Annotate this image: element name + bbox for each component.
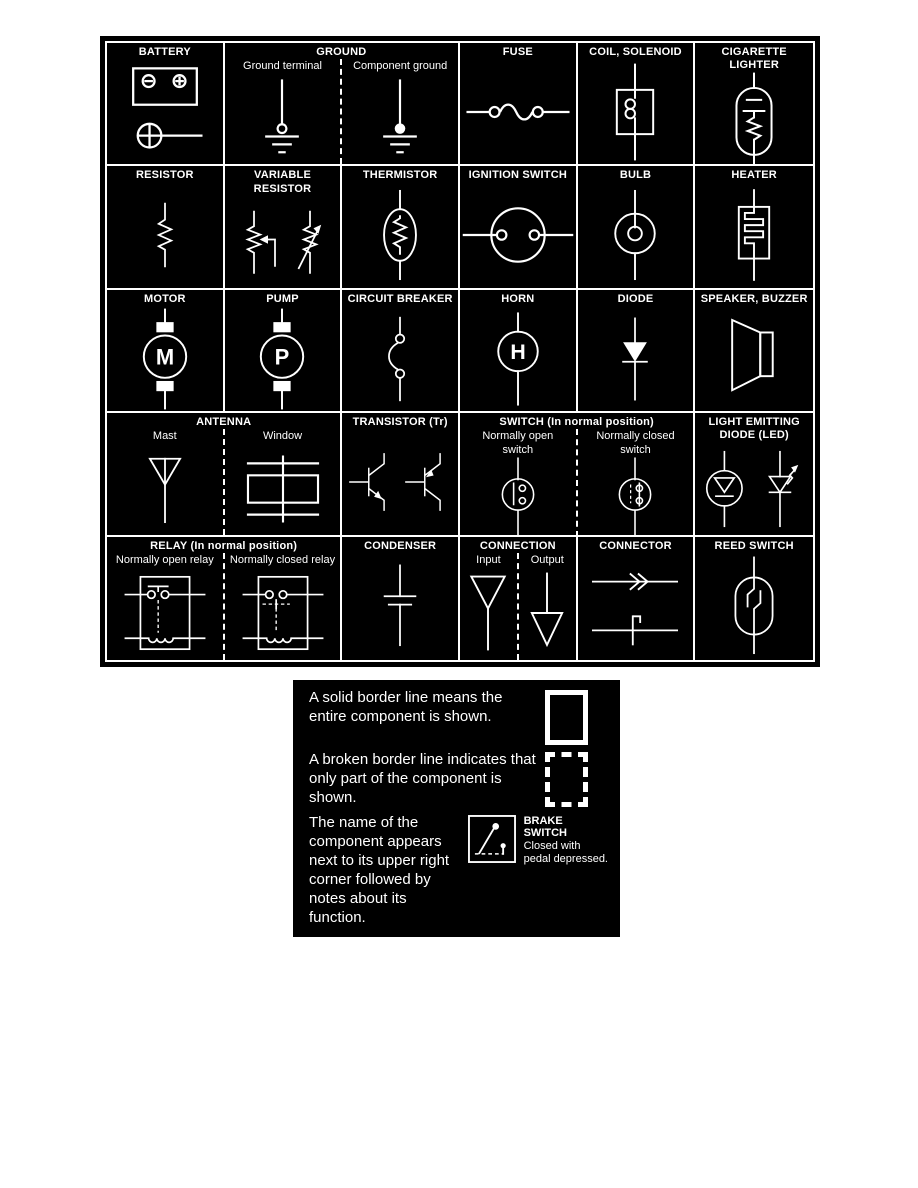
cell-title: CONNECTION: [460, 537, 576, 553]
cell-cigarette-lighter: CIGARETTE LIGHTER: [695, 43, 813, 166]
note-broken-border: A broken border line indicates that only…: [309, 750, 608, 807]
cell-antenna: ANTENNA Mast Window: [107, 413, 342, 536]
sub-label: Output: [531, 553, 564, 567]
symbol-grid: BATTERY GROUND Ground terminal: [105, 41, 815, 662]
cell-title: TRANSISTOR (Tr): [342, 413, 458, 429]
cell-title: THERMISTOR: [342, 166, 458, 182]
cell-title: RESISTOR: [107, 166, 223, 182]
brake-switch-example: BRAKE SWITCH Closed with pedal depressed…: [466, 813, 608, 866]
cell-title: REED SWITCH: [695, 537, 813, 553]
cell-ignition-switch: IGNITION SWITCH: [460, 166, 578, 289]
cell-title: BULB: [578, 166, 694, 182]
cigarette-lighter-icon: [714, 72, 794, 166]
cell-variable-resistor: VARIABLE RESISTOR: [225, 166, 343, 289]
cell-title: SWITCH (In normal position): [460, 413, 693, 429]
normally-closed-switch-icon: [602, 457, 668, 537]
component-ground-icon: [365, 75, 435, 163]
cell-title: VARIABLE RESISTOR: [225, 166, 341, 195]
cell-title: CONDENSER: [342, 537, 458, 553]
connector-icon: [582, 558, 688, 654]
cell-battery: BATTERY: [107, 43, 225, 166]
sub-label: Component ground: [353, 59, 447, 73]
normally-open-switch-icon: [485, 457, 551, 537]
cell-title: BATTERY: [107, 43, 223, 59]
horn-icon: H: [480, 309, 556, 409]
cell-title: FUSE: [460, 43, 576, 59]
battery-icon: [115, 62, 215, 162]
cell-title: IGNITION SWITCH: [460, 166, 576, 182]
resistor-icon: [130, 187, 200, 283]
cell-switch: SWITCH (In normal position) Normally ope…: [460, 413, 695, 536]
bulb-icon: [597, 187, 673, 283]
svg-text:P: P: [275, 344, 290, 369]
connection-output-icon: [523, 572, 571, 654]
brake-switch-labels: BRAKE SWITCH Closed with pedal depressed…: [524, 813, 608, 866]
cell-diode: DIODE: [578, 290, 696, 413]
broken-border-box-icon: [545, 752, 588, 807]
svg-text:H: H: [510, 340, 525, 364]
window-antenna-icon: [235, 448, 331, 530]
motor-icon: M: [125, 308, 205, 410]
cell-title: CIGARETTE LIGHTER: [695, 43, 813, 72]
circuit-breaker-icon: [365, 310, 435, 408]
cell-motor: MOTOR M: [107, 290, 225, 413]
cell-title: DIODE: [578, 290, 694, 306]
note-text: A solid border line means the entire com…: [309, 688, 537, 726]
cell-title: LIGHT EMITTING DIODE (LED): [695, 413, 813, 442]
brake-switch-icon: [466, 813, 518, 865]
normally-open-relay-icon: [113, 570, 217, 656]
cell-title: HEATER: [695, 166, 813, 182]
sub-label: Ground terminal: [243, 59, 322, 73]
note-component-name: The name of the component appears next t…: [309, 813, 608, 927]
mast-antenna-icon: [129, 447, 201, 531]
transistor-icon: [344, 441, 456, 523]
speaker-icon: [715, 311, 793, 407]
ignition-switch-icon: [462, 192, 574, 278]
normally-closed-relay-icon: [231, 570, 335, 656]
sub-label: Mast: [153, 429, 177, 443]
cell-condenser: CONDENSER: [342, 537, 460, 660]
svg-text:M: M: [156, 344, 174, 369]
cell-pump: PUMP P: [225, 290, 343, 413]
cell-connector: CONNECTOR: [578, 537, 696, 660]
cell-bulb: BULB: [578, 166, 696, 289]
thermistor-icon: [362, 187, 438, 283]
reed-switch-icon: [717, 556, 791, 656]
brake-switch-name: BRAKE: [524, 815, 608, 828]
sub-label: Normally open relay: [116, 553, 214, 567]
cell-circuit-breaker: CIRCUIT BREAKER: [342, 290, 460, 413]
cell-title: HORN: [460, 290, 576, 306]
cell-title: CONNECTOR: [578, 537, 694, 553]
sub-label: Window: [263, 429, 302, 443]
cell-title: COIL, SOLENOID: [578, 43, 694, 59]
cell-title: SPEAKER, BUZZER: [695, 290, 813, 306]
sub-label: Normally open switch: [476, 429, 560, 456]
cell-reed-switch: REED SWITCH: [695, 537, 813, 660]
cell-horn: HORN H: [460, 290, 578, 413]
note-text: A broken border line indicates that only…: [309, 750, 537, 807]
sub-label: Normally closed switch: [593, 429, 677, 456]
coil-solenoid-icon: [595, 63, 675, 161]
brake-switch-name: SWITCH: [524, 827, 608, 840]
brake-switch-note: Closed with: [524, 840, 608, 853]
solid-border-box-icon: [545, 690, 588, 745]
brake-switch-note: pedal depressed.: [524, 853, 608, 866]
cell-title: CIRCUIT BREAKER: [342, 290, 458, 306]
fuse-icon: [464, 90, 572, 134]
cell-ground: GROUND Ground terminal Component ground: [225, 43, 460, 166]
variable-resistor-icon: [226, 196, 338, 290]
pump-icon: P: [242, 308, 322, 410]
cell-heater: HEATER: [695, 166, 813, 289]
heater-icon: [716, 187, 792, 283]
cell-relay: RELAY (In normal position) Normally open…: [107, 537, 342, 660]
cell-title: GROUND: [225, 43, 458, 59]
sub-label: Normally closed relay: [230, 553, 335, 567]
diode-icon: [600, 310, 670, 408]
cell-title: MOTOR: [107, 290, 223, 306]
cell-resistor: RESISTOR: [107, 166, 225, 289]
sub-label: Input: [476, 553, 500, 567]
cell-speaker-buzzer: SPEAKER, BUZZER: [695, 290, 813, 413]
cell-transistor: TRANSISTOR (Tr): [342, 413, 460, 536]
cell-led: LIGHT EMITTING DIODE (LED): [695, 413, 813, 536]
connection-input-icon: [464, 572, 512, 654]
cell-thermistor: THERMISTOR: [342, 166, 460, 289]
cell-fuse: FUSE: [460, 43, 578, 166]
symbol-legend-table: BATTERY GROUND Ground terminal: [100, 36, 820, 667]
cell-connection: CONNECTION Input Output: [460, 537, 578, 660]
note-text: The name of the component appears next t…: [309, 813, 462, 927]
led-icon: [695, 449, 813, 529]
notes-panel: A solid border line means the entire com…: [293, 680, 620, 937]
condenser-icon: [365, 556, 435, 656]
note-solid-border: A solid border line means the entire com…: [309, 688, 608, 745]
cell-title: RELAY (In normal position): [107, 537, 340, 553]
cell-title: PUMP: [225, 290, 341, 306]
cell-coil-solenoid: COIL, SOLENOID: [578, 43, 696, 166]
manual-page: { "colors":{"panel_bg":"#000000","line":…: [0, 0, 918, 1188]
ground-terminal-icon: [247, 75, 317, 163]
cell-title: ANTENNA: [107, 413, 340, 429]
